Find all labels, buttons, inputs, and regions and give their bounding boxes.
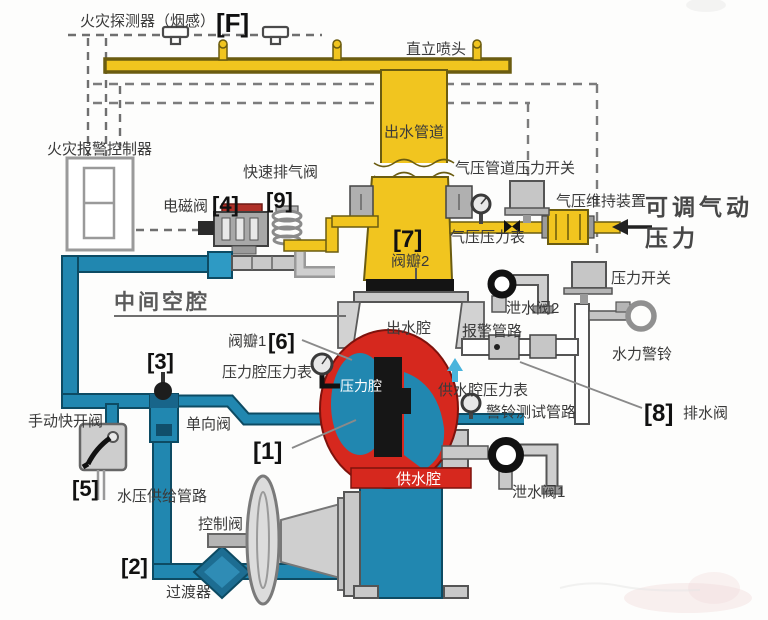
marker-5: [5] <box>72 476 99 501</box>
label-manual-quick-open-valve: 手动快开阀 <box>28 413 103 430</box>
air-pressure-gauge-icon <box>472 195 490 224</box>
label-upright-sprinkler: 直立喷头 <box>406 41 466 58</box>
water-alarm-bell-icon <box>589 302 654 329</box>
label-valve-disc-1: 阀瓣1 <box>228 333 266 350</box>
label-fire-alarm-controller: 火灾报警控制器 <box>47 141 152 158</box>
smoke-detector-icon <box>263 27 288 44</box>
label-valve-disc-2: 阀瓣2 <box>391 253 429 270</box>
marker-1: [1] <box>253 438 282 465</box>
label-check-valve: 单向阀 <box>186 416 231 433</box>
label-solenoid-valve: 电磁阀 <box>163 198 208 215</box>
label-pressure-chamber-gauge: 压力腔压力表 <box>222 364 312 381</box>
fire-alarm-controller-icon <box>67 158 133 250</box>
label-middle-cavity: 中间空腔 <box>114 290 210 314</box>
check-valve-icon <box>150 394 178 442</box>
sprinkler-head-icon <box>333 40 341 60</box>
sprinkler-branch-pipe <box>105 59 510 72</box>
label-adjustable-air-1: 可调气动 <box>645 194 753 220</box>
label-outlet-chamber: 出水腔 <box>386 320 431 337</box>
label-drain-valve-2: 泄水阀2 <box>506 300 559 317</box>
label-drain-valve-main: 排水阀 <box>683 405 728 422</box>
label-air-maintenance-device: 气压维持装置 <box>556 193 646 210</box>
label-drain-valve-1: 泄水阀1 <box>512 484 565 501</box>
label-control-valve: 控制阀 <box>198 516 243 533</box>
deluge-valve-system-diagram: 火灾探测器（烟感） [F] 直立喷头 出水管道 火灾报警控制器 快速排气阀 [9… <box>0 0 768 620</box>
sprinkler-head-icon <box>219 40 227 60</box>
label-adjustable-air-2: 压力 <box>645 225 699 251</box>
marker-8: [8] <box>644 400 673 427</box>
air-maintenance-device-icon <box>542 210 594 244</box>
label-fire-detector: 火灾探测器（烟感） <box>80 13 215 30</box>
label-pressure-switch: 压力开关 <box>611 270 671 287</box>
marker-6: [6] <box>268 329 295 354</box>
label-alarm-pipeline: 报警管路 <box>462 323 522 340</box>
diagram-canvas: 火灾探测器（烟感） [F] 直立喷头 出水管道 火灾报警控制器 快速排气阀 [9… <box>0 0 768 620</box>
label-supply-chamber: 供水腔 <box>396 471 441 488</box>
label-air-pressure-gauge: 气压压力表 <box>450 229 525 246</box>
marker-f: [F] <box>216 8 249 38</box>
test-cock-icon <box>154 372 172 400</box>
valve-disc2-seat <box>354 279 468 302</box>
sprinkler-head-icon <box>473 40 481 60</box>
label-water-supply-pipeline: 水压供给管路 <box>117 488 207 505</box>
label-transition-device: 过渡器 <box>166 584 211 601</box>
marker-2: [2] <box>121 554 148 579</box>
label-water-alarm-bell: 水力警铃 <box>612 346 672 363</box>
label-quick-exhaust-valve: 快速排气阀 <box>243 164 318 181</box>
marker-9: [9] <box>266 188 293 213</box>
label-pressure-chamber: 压力腔 <box>340 378 382 394</box>
marker-3: [3] <box>147 349 174 374</box>
marker-7: [7] <box>393 226 422 253</box>
label-air-pipe-pressure-switch: 气压管道压力开关 <box>455 160 575 177</box>
label-supply-chamber-gauge: 供水腔压力表 <box>438 382 528 399</box>
label-bell-test-pipeline: 警铃测试管路 <box>486 404 576 421</box>
solenoid-pipe-fitting <box>208 252 298 278</box>
pressure-switch-icon <box>564 262 612 304</box>
marker-4: [4] <box>212 192 239 217</box>
label-outlet-pipe: 出水管道 <box>384 124 444 141</box>
